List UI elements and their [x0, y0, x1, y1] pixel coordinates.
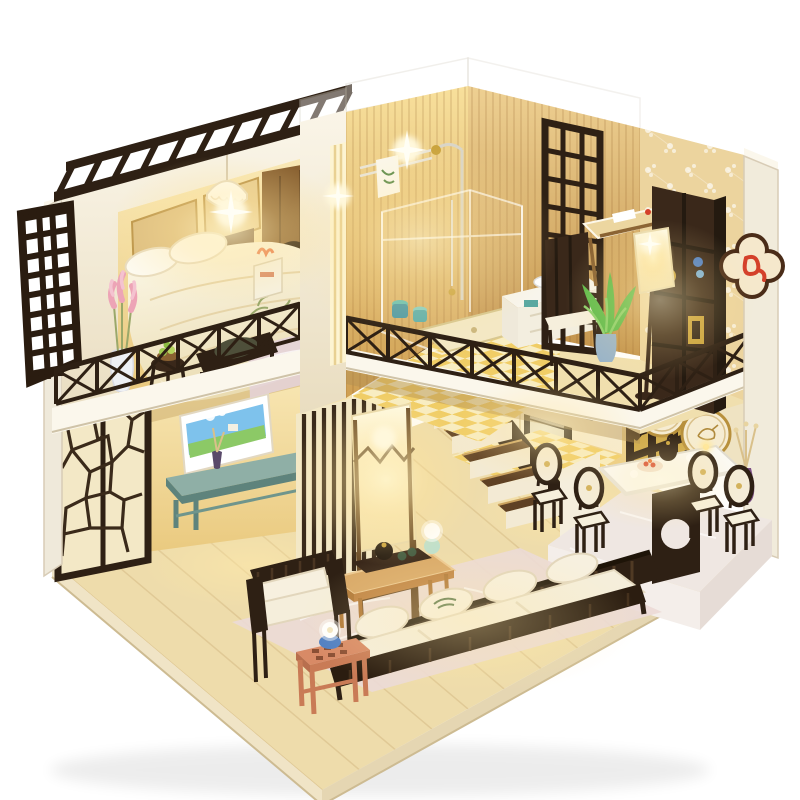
- product-photo-stage: [0, 0, 800, 800]
- candle-glow: [700, 440, 712, 452]
- lattice-shutter: [21, 205, 79, 382]
- floor-lamp-flare: [372, 426, 396, 450]
- dollhouse-photo: [0, 0, 800, 800]
- dollhouse-illustration: [0, 0, 800, 800]
